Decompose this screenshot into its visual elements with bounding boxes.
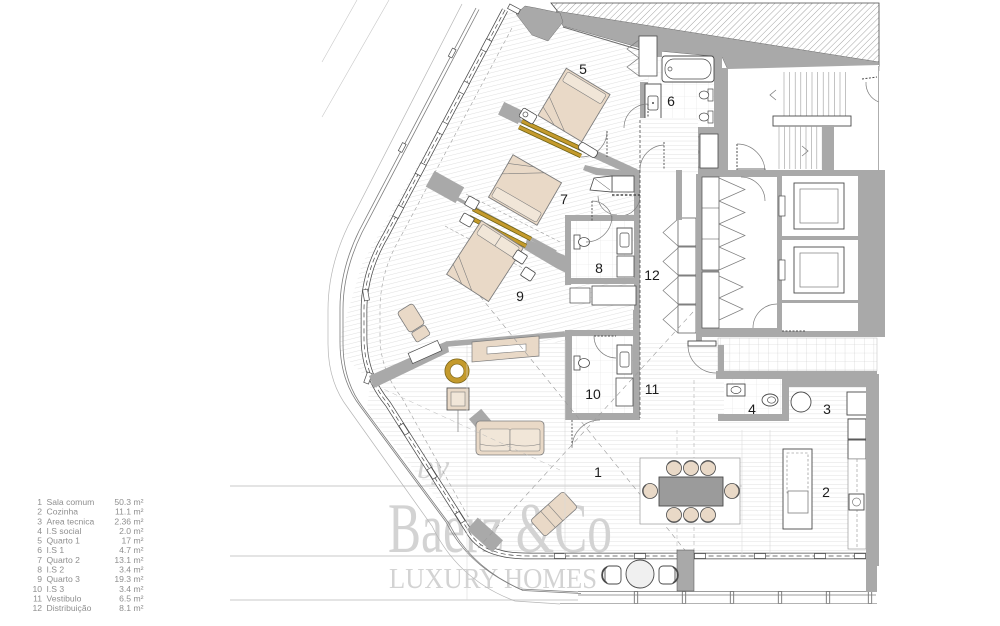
svg-text:2.0 m²: 2.0 m²: [119, 526, 143, 536]
svg-text:10: 10: [32, 584, 42, 594]
svg-text:1: 1: [594, 464, 602, 480]
svg-text:3: 3: [37, 516, 42, 526]
svg-text:4.7 m²: 4.7 m²: [119, 545, 143, 555]
svg-text:7: 7: [37, 555, 42, 565]
svg-text:2.36 m²: 2.36 m²: [114, 516, 143, 526]
svg-text:10: 10: [585, 386, 601, 402]
svg-text:Quarto 1: Quarto 1: [47, 536, 81, 546]
svg-text:19.3 m²: 19.3 m²: [114, 574, 143, 584]
svg-text:50.3 m²: 50.3 m²: [114, 497, 143, 507]
svg-text:8: 8: [37, 565, 42, 575]
svg-text:Quarto 3: Quarto 3: [47, 574, 81, 584]
svg-text:4: 4: [37, 526, 42, 536]
svg-text:9: 9: [516, 288, 524, 304]
svg-text:9: 9: [37, 574, 42, 584]
svg-text:6.5 m²: 6.5 m²: [119, 594, 143, 604]
svg-text:11: 11: [33, 594, 42, 604]
svg-text:Distribuição: Distribuição: [47, 603, 92, 613]
svg-text:3.4 m²: 3.4 m²: [119, 565, 143, 575]
svg-text:Cozinha: Cozinha: [47, 507, 79, 517]
svg-text:Sala comum: Sala comum: [47, 497, 95, 507]
svg-text:6: 6: [667, 93, 675, 109]
svg-text:Quarto 2: Quarto 2: [47, 555, 81, 565]
svg-text:2: 2: [822, 484, 830, 500]
svg-text:I.S 2: I.S 2: [47, 565, 65, 575]
svg-text:8: 8: [595, 260, 603, 276]
svg-text:I.S 3: I.S 3: [47, 584, 65, 594]
svg-text:2: 2: [37, 507, 42, 517]
svg-text:17 m²: 17 m²: [122, 536, 144, 546]
svg-text:1: 1: [37, 497, 42, 507]
svg-text:11: 11: [645, 381, 660, 397]
svg-text:I.S social: I.S social: [47, 526, 82, 536]
svg-text:I.S 1: I.S 1: [47, 545, 65, 555]
svg-text:12: 12: [644, 267, 660, 283]
svg-text:3: 3: [823, 401, 831, 417]
svg-text:11.1 m²: 11.1 m²: [115, 507, 144, 517]
svg-text:Area tecnica: Area tecnica: [47, 516, 95, 526]
svg-text:5: 5: [579, 61, 587, 77]
svg-text:7: 7: [560, 191, 568, 207]
svg-text:LUXURY HOMES: LUXURY HOMES: [389, 563, 597, 595]
svg-text:4: 4: [748, 401, 756, 417]
svg-text:Vestibulo: Vestibulo: [47, 594, 82, 604]
svg-text:13.1 m²: 13.1 m²: [114, 555, 143, 565]
svg-text:6: 6: [37, 545, 42, 555]
svg-text:3.4 m²: 3.4 m²: [119, 584, 143, 594]
svg-text:5: 5: [37, 536, 42, 546]
svg-text:8.1 m²: 8.1 m²: [119, 603, 143, 613]
svg-text:12: 12: [32, 603, 42, 613]
